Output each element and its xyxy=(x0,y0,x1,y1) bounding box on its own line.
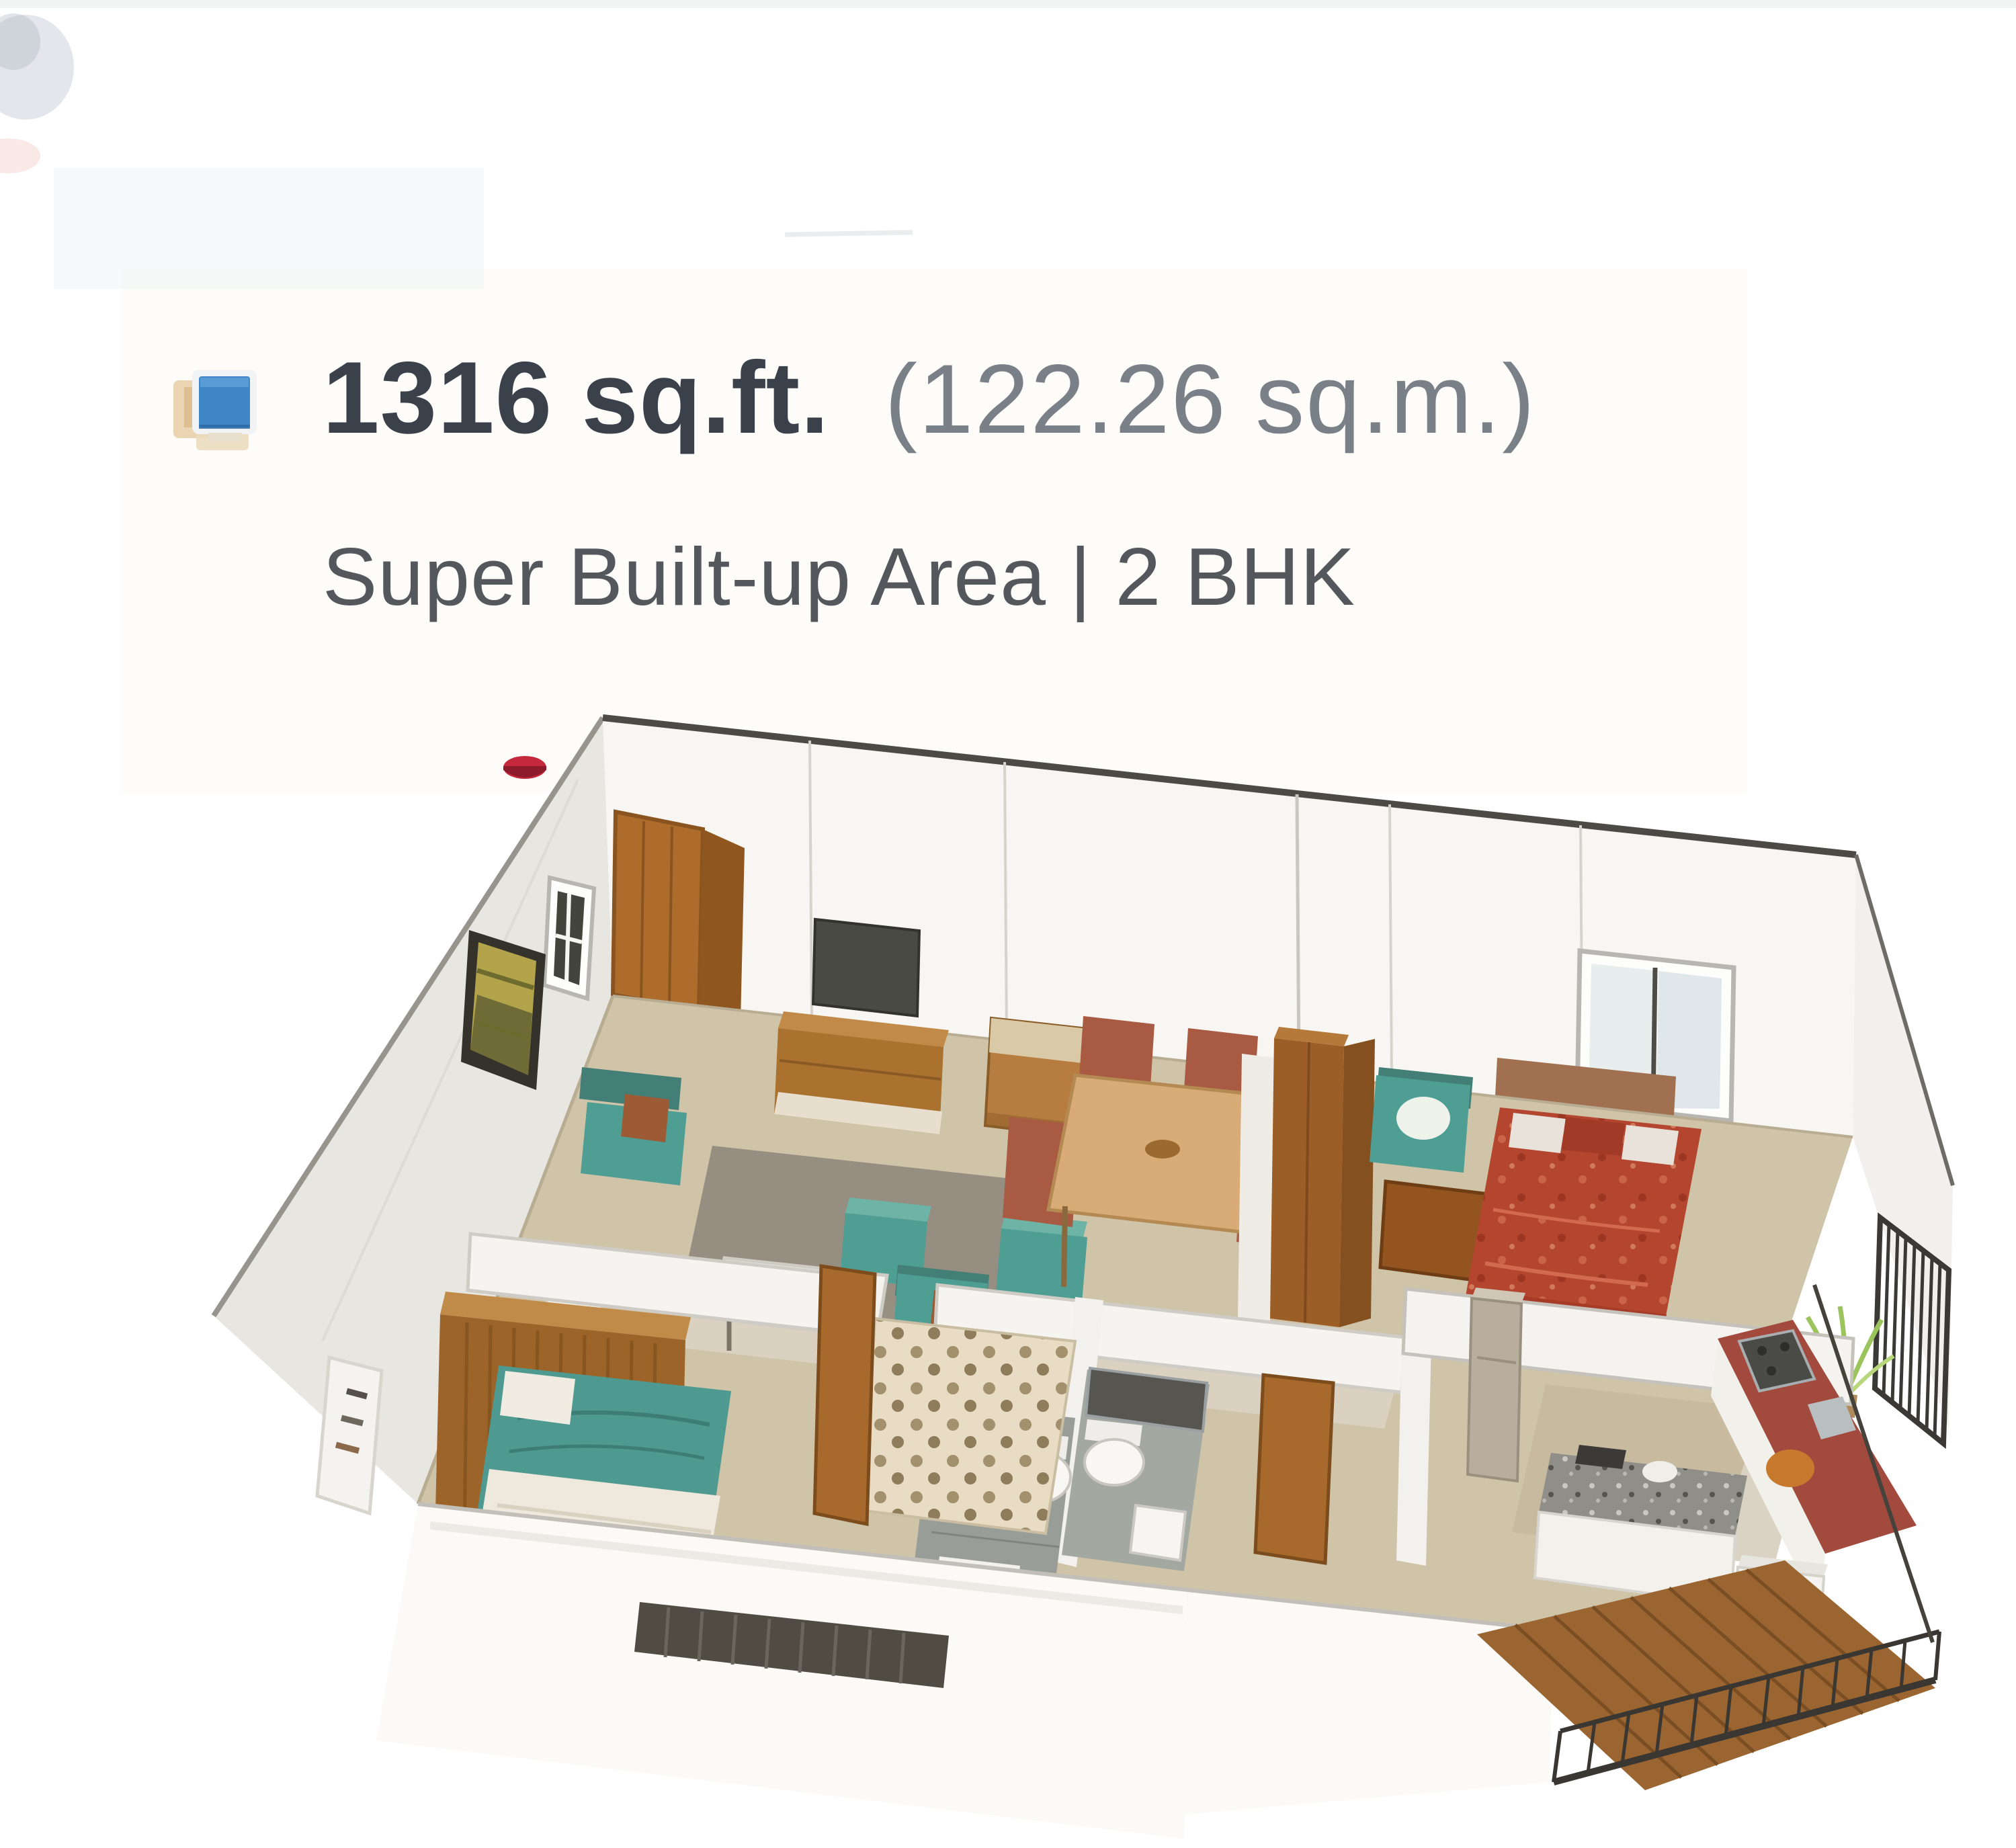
kitchen-stool xyxy=(1766,1450,1814,1487)
washbasin xyxy=(1130,1505,1185,1560)
tv-unit xyxy=(774,1011,949,1134)
red-dot xyxy=(503,756,546,779)
wall-shelf xyxy=(317,1357,382,1513)
armchair xyxy=(579,1067,687,1185)
floorplan-illustration xyxy=(214,718,1953,1839)
area-title: 1316 sq.ft.(122.26 sq.m.) xyxy=(323,339,1536,457)
floorplan-image[interactable] xyxy=(0,0,2016,1848)
area-sqm: (122.26 sq.m.) xyxy=(884,344,1536,454)
toilet xyxy=(1085,1419,1144,1485)
curtain xyxy=(864,1318,1075,1534)
entry-door xyxy=(613,812,745,1021)
bathroom-door xyxy=(814,1266,875,1524)
kitchen-door xyxy=(1255,1375,1333,1563)
area-sqft: 1316 sq.ft. xyxy=(323,341,829,455)
fridge xyxy=(1468,1288,1525,1481)
tall-cabinet xyxy=(1238,1027,1375,1327)
tv xyxy=(813,919,919,1016)
bedroom-armchair xyxy=(1370,1067,1473,1173)
area-measure-icon xyxy=(169,360,269,460)
left-wall-window xyxy=(544,878,594,999)
ottoman xyxy=(996,1213,1087,1302)
wall-artwork xyxy=(461,930,546,1090)
area-subtitle: Super Built-up Area | 2 BHK xyxy=(323,530,1355,624)
